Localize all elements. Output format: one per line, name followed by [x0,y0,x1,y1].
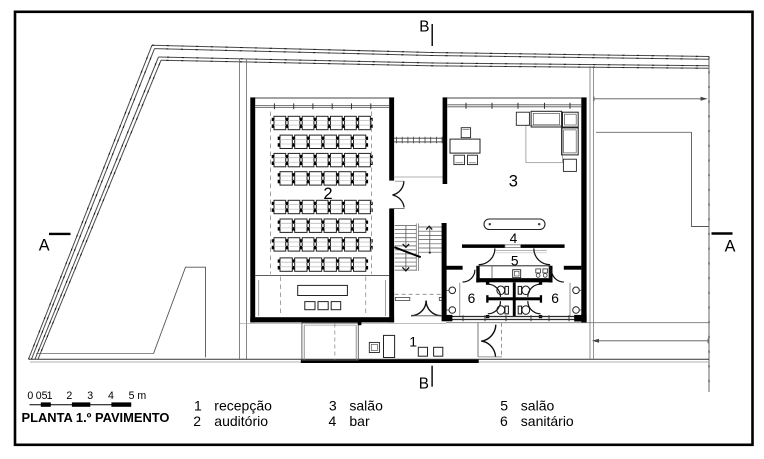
svg-text:salão: salão [349,398,383,414]
svg-text:m: m [137,390,146,402]
svg-text:B: B [419,19,429,36]
svg-text:3: 3 [87,390,93,402]
svg-text:bar: bar [349,413,370,429]
svg-text:6: 6 [551,291,559,306]
svg-text:A: A [39,236,50,254]
svg-text:A: A [725,237,736,255]
svg-text:auditório: auditório [214,413,268,429]
svg-text:5: 5 [129,390,135,402]
svg-text:1: 1 [409,334,417,350]
svg-text:6: 6 [468,291,476,306]
svg-text:3: 3 [329,398,337,414]
svg-text:sanitário: sanitário [521,413,574,429]
svg-text:recepção: recepção [214,398,272,414]
svg-text:4: 4 [329,413,337,429]
svg-text:B: B [419,376,429,393]
svg-text:2: 2 [323,185,332,203]
svg-text:5: 5 [500,398,508,414]
svg-text:PLANTA 1.º PAVIMENTO: PLANTA 1.º PAVIMENTO [22,410,170,425]
svg-text:1: 1 [47,390,53,402]
svg-text:2: 2 [193,413,201,429]
svg-text:4: 4 [108,390,114,402]
svg-text:4: 4 [510,231,518,246]
svg-text:3: 3 [509,172,518,190]
svg-text:6: 6 [500,413,508,429]
svg-text:2: 2 [66,390,72,402]
svg-text:1: 1 [194,398,202,414]
svg-text:salão: salão [521,398,555,414]
svg-text:0: 0 [27,390,33,402]
